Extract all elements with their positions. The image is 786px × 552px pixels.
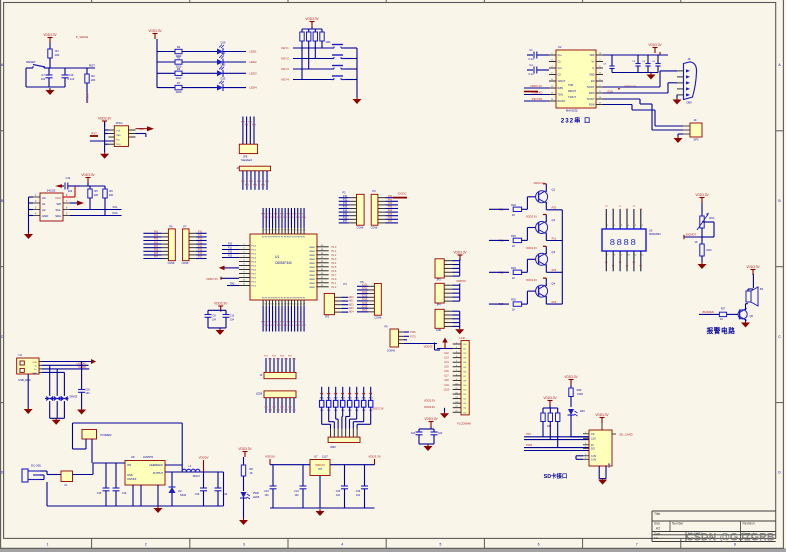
svg-text:/DCMOT: /DCMOT	[686, 233, 697, 237]
svg-text:VDD3.3V: VDD3.3V	[526, 214, 537, 218]
svg-text:C26: C26	[356, 490, 361, 493]
svg-text:P4: P4	[343, 282, 347, 286]
svg-text:5: 5	[439, 542, 441, 546]
svg-text:P0.0: P0.0	[252, 246, 257, 248]
svg-text:/CS7: /CS7	[362, 310, 368, 312]
svg-text:P13: P13	[198, 242, 203, 244]
svg-text:VDD3.3V: VDD3.3V	[695, 193, 709, 197]
svg-text:JP4: JP4	[436, 304, 441, 307]
svg-text:P31TXD: P31TXD	[532, 97, 543, 101]
svg-text:P0.1: P0.1	[252, 282, 257, 284]
svg-text:TDO: TDO	[116, 144, 121, 146]
svg-text:R5: R5	[94, 189, 98, 193]
svg-text:Q4: Q4	[552, 282, 556, 286]
svg-text:P0.2: P0.2	[252, 254, 257, 256]
svg-text:File: File	[654, 536, 659, 540]
svg-text:C4: C4	[529, 63, 533, 67]
svg-text:VDD5V: VDD5V	[456, 279, 466, 283]
svg-text:GND: GND	[609, 462, 611, 467]
svg-text:SM410564: SM410564	[649, 233, 661, 236]
svg-text:R2OUT: R2OUT	[568, 90, 577, 93]
svg-text:C1: C1	[529, 48, 533, 52]
svg-text:P14: P14	[198, 246, 203, 248]
svg-text:104: 104	[336, 494, 341, 497]
svg-text:RST: RST	[89, 64, 95, 68]
svg-text:DM9: DM9	[330, 446, 336, 449]
svg-text:C24: C24	[294, 490, 299, 493]
svg-text:VREF: VREF	[309, 251, 315, 253]
svg-text:VDD3.3V: VDD3.3V	[543, 396, 557, 400]
svg-text:R2IN: R2IN	[558, 87, 564, 90]
svg-text:AD4: AD4	[349, 311, 354, 314]
svg-text:LM2576: LM2576	[143, 455, 154, 459]
svg-text:R1IN: R1IN	[589, 104, 595, 107]
svg-text:104: 104	[230, 319, 235, 322]
svg-text:R30: R30	[577, 388, 582, 392]
svg-text:GND: GND	[127, 474, 133, 477]
svg-text:CON8: CON8	[168, 262, 175, 265]
svg-text:P1.1: P1.1	[332, 251, 337, 253]
svg-text:SS34: SS34	[180, 494, 187, 497]
svg-text:D40: D40	[580, 409, 585, 413]
svg-text:TCK: TCK	[116, 131, 121, 133]
svg-text:1K: 1K	[249, 471, 252, 475]
svg-text:CS: CS	[591, 433, 595, 436]
svg-text:LED8: LED8	[256, 393, 263, 396]
svg-text:LED5: LED5	[253, 496, 260, 499]
svg-text:CON8: CON8	[375, 317, 382, 320]
svg-text:C10: C10	[230, 315, 235, 318]
svg-text:DO: DO	[591, 447, 595, 450]
svg-text:1K: 1K	[512, 213, 515, 217]
svg-text:VDD3.3V: VDD3.3V	[206, 277, 218, 281]
svg-text:C23: C23	[264, 490, 269, 493]
svg-text:P17S: P17S	[410, 336, 416, 338]
svg-text:VREF: VREF	[309, 271, 315, 273]
svg-text:1K: 1K	[512, 308, 515, 312]
svg-text:P32: P32	[343, 203, 348, 205]
svg-text:C1-: C1-	[558, 61, 562, 64]
svg-text:VDD3.3V: VDD3.3V	[533, 181, 544, 185]
svg-text:C8051F340: C8051F340	[275, 261, 292, 265]
svg-text:VDD5V: VDD5V	[265, 455, 275, 459]
svg-text:1K: 1K	[512, 244, 515, 248]
svg-text:T2IN: T2IN	[568, 84, 573, 87]
svg-text:SCL: SCL	[56, 208, 62, 212]
svg-text:USBDP: USBDP	[78, 366, 87, 369]
svg-text:P33: P33	[343, 207, 348, 209]
svg-text:P42: P42	[388, 203, 393, 205]
svg-text:P0.5: P0.5	[252, 266, 257, 268]
svg-text:P2A: P2A	[112, 211, 117, 215]
svg-text:P0.2: P0.2	[252, 286, 257, 288]
svg-text:VDD5V: VDD5V	[198, 456, 208, 460]
svg-text:P12: P12	[228, 252, 233, 254]
svg-text:SDA: SDA	[55, 214, 61, 218]
svg-text:LD4: LD4	[444, 362, 449, 364]
svg-text:P0.3: P0.3	[252, 258, 257, 260]
svg-text:VDD3.3V: VDD3.3V	[526, 278, 537, 282]
svg-text:JP3: JP3	[436, 279, 441, 282]
svg-text:T1OUT: T1OUT	[568, 96, 576, 99]
svg-text:/CS6: /CS6	[362, 306, 368, 308]
svg-text:AD0: AD0	[349, 296, 354, 299]
svg-text:P17: P17	[198, 257, 203, 259]
svg-text:P1.2: P1.2	[332, 255, 337, 257]
svg-text:T2OUT: T2OUT	[558, 80, 566, 83]
svg-text:P0.4: P0.4	[252, 262, 257, 264]
svg-text:VREF: VREF	[309, 263, 315, 265]
svg-text:VDD3.3V: VDD3.3V	[305, 17, 319, 21]
svg-text:SD卡接口: SD卡接口	[544, 472, 568, 480]
svg-text:T2OUT: T2OUT	[587, 86, 595, 89]
svg-text:INT: INT	[318, 468, 322, 471]
svg-text:VDD3.3V: VDD3.3V	[368, 455, 381, 459]
svg-text:104: 104	[295, 494, 300, 497]
svg-text:LED4: LED4	[249, 86, 257, 90]
svg-text:R23: R23	[511, 234, 516, 238]
svg-text:D10: D10	[221, 41, 226, 45]
svg-text:LD3: LD3	[444, 357, 449, 359]
svg-text:VREF: VREF	[309, 255, 315, 257]
svg-text:LD7: LD7	[444, 376, 449, 378]
svg-text:P30: P30	[343, 196, 348, 198]
svg-text:LD5: LD5	[444, 367, 449, 369]
svg-text:P3: P3	[372, 189, 376, 193]
svg-text:AD3: AD3	[349, 307, 354, 310]
svg-text:CON8: CON8	[357, 227, 364, 230]
svg-text:C21: C21	[411, 432, 416, 435]
svg-text:D-: D-	[35, 366, 38, 368]
svg-text:VDD3.3V: VDD3.3V	[424, 399, 435, 403]
svg-text:WP: WP	[56, 202, 61, 206]
svg-text:CON8: CON8	[371, 227, 378, 230]
svg-text:7: 7	[636, 542, 638, 546]
svg-text:1: 1	[47, 542, 49, 546]
svg-text:P0.0: P0.0	[252, 278, 257, 280]
svg-text:U5: U5	[649, 229, 653, 233]
svg-text:P16S: P16S	[526, 443, 533, 447]
svg-text:R25: R25	[511, 298, 516, 302]
svg-text:P07: P07	[154, 257, 159, 259]
svg-text:CSDN @GJZGRB: CSDN @GJZGRB	[686, 532, 775, 544]
svg-text:VDD3.3V: VDD3.3V	[424, 405, 435, 409]
svg-text:AD2: AD2	[349, 303, 354, 306]
svg-text:TMS: TMS	[230, 284, 235, 286]
svg-text:VDD3.3V: VDD3.3V	[98, 117, 112, 121]
svg-text:C7: C7	[41, 73, 45, 77]
svg-text:C10: C10	[69, 73, 74, 77]
svg-text:6: 6	[538, 542, 540, 546]
svg-text:P12: P12	[198, 239, 203, 241]
svg-text:FLCD9648: FLCD9648	[457, 421, 471, 425]
svg-text:P22: P22	[552, 268, 557, 272]
svg-text:P1.5: P1.5	[332, 267, 337, 269]
svg-text:Size: Size	[654, 522, 660, 526]
svg-text:P0.7: P0.7	[252, 274, 257, 276]
svg-text:R6: R6	[109, 189, 113, 193]
svg-text:10K: 10K	[55, 53, 60, 57]
svg-text:R1OUT: R1OUT	[558, 100, 567, 103]
svg-text:RV1: RV1	[709, 216, 715, 220]
svg-text:P2: P2	[342, 191, 346, 195]
svg-text:B1: B1	[760, 287, 764, 291]
svg-text:Title: Title	[654, 512, 660, 516]
svg-text:U7: U7	[314, 455, 318, 459]
svg-text:VREF: VREF	[309, 287, 315, 289]
svg-text:EN: EN	[591, 80, 595, 83]
svg-text:KEY2: KEY2	[281, 57, 289, 61]
svg-text:OUTPUT: OUTPUT	[153, 472, 164, 475]
svg-text:P36: P36	[343, 218, 348, 220]
svg-text:报警电路: 报警电路	[707, 326, 736, 335]
svg-text:JP2: JP2	[325, 316, 330, 319]
svg-text:P1.0: P1.0	[332, 247, 337, 249]
svg-text:VREF: VREF	[309, 247, 315, 249]
svg-text:T1IN: T1IN	[558, 94, 563, 97]
svg-text:CON4S: CON4S	[387, 350, 396, 353]
svg-text:SIP2: SIP2	[693, 139, 699, 142]
svg-text:U4: U4	[19, 353, 23, 357]
svg-text:GND: GND	[436, 329, 442, 332]
svg-text:P13: P13	[228, 256, 233, 258]
svg-text:P1.7: P1.7	[332, 275, 337, 277]
svg-text:USBDM: USBDM	[77, 362, 86, 365]
svg-text:24C02: 24C02	[47, 189, 56, 193]
svg-text:R8: R8	[249, 467, 253, 471]
svg-text:GND: GND	[32, 373, 37, 375]
svg-text:VDD: VDD	[32, 362, 37, 364]
svg-text:Revision: Revision	[743, 522, 755, 526]
svg-text:P46: P46	[388, 218, 393, 220]
svg-text:A2: A2	[656, 527, 660, 531]
svg-text:/BUZZER: /BUZZER	[702, 310, 714, 314]
svg-text:3.3V: 3.3V	[591, 458, 596, 461]
svg-text:VDD3.3V: VDD3.3V	[453, 251, 467, 255]
svg-text:P16: P16	[198, 253, 203, 255]
svg-text:VDD3.3V: VDD3.3V	[148, 29, 162, 33]
svg-text:J4: J4	[694, 118, 697, 122]
svg-text:P21: P21	[552, 236, 557, 240]
svg-text:VIN: VIN	[127, 464, 131, 467]
svg-text:U2: U2	[558, 45, 562, 49]
svg-text:P1.3: P1.3	[332, 259, 337, 261]
svg-text:LD9: LD9	[444, 385, 449, 387]
svg-text:A0: A0	[42, 196, 46, 200]
svg-text:C1+: C1+	[558, 54, 563, 57]
svg-text:C2+: C2+	[558, 67, 563, 70]
svg-text:VDD3.3V: VDD3.3V	[214, 302, 228, 306]
svg-text:VDD: VDD	[589, 54, 594, 57]
svg-text:104: 104	[68, 189, 73, 193]
svg-text:P1.1: P1.1	[332, 283, 337, 285]
svg-text:D11: D11	[221, 51, 226, 55]
svg-text:2: 2	[145, 542, 147, 546]
svg-text:/CS2: /CS2	[362, 292, 368, 294]
svg-text:R4: R4	[177, 45, 181, 49]
svg-text:C16: C16	[122, 492, 127, 495]
svg-text:VDD3.3V: VDD3.3V	[564, 375, 578, 379]
svg-text:P1.0: P1.0	[332, 279, 337, 281]
svg-text:FEEDBACK: FEEDBACK	[150, 464, 164, 467]
svg-text:P41: P41	[388, 200, 393, 202]
svg-text:CLK: CLK	[591, 437, 596, 440]
svg-text:KEY3: KEY3	[281, 67, 289, 71]
svg-text:P34: P34	[343, 210, 348, 212]
svg-text:Q2: Q2	[552, 218, 556, 222]
svg-text:D12: D12	[221, 62, 226, 66]
svg-text:/CS3: /CS3	[362, 295, 368, 297]
svg-text:P02: P02	[154, 239, 159, 241]
svg-text:8888: 8888	[610, 237, 638, 248]
svg-text:JTAG: JTAG	[115, 121, 123, 125]
svg-text:3300: 3300	[176, 76, 182, 80]
svg-text:P45: P45	[388, 214, 393, 216]
svg-text:P10: P10	[198, 232, 203, 234]
svg-text:DB9: DB9	[686, 101, 692, 105]
svg-text:ON/OFF: ON/OFF	[127, 478, 137, 481]
svg-text:P04: P04	[154, 246, 159, 248]
svg-text:P1.4: P1.4	[332, 263, 337, 265]
svg-text:J6: J6	[688, 57, 691, 61]
svg-text:U6: U6	[131, 455, 135, 459]
svg-text:VDD3.3V: VDD3.3V	[315, 464, 325, 467]
svg-text:P15: P15	[526, 432, 531, 436]
svg-text:RST: RST	[91, 132, 97, 136]
svg-text:P2L: P2L	[113, 205, 118, 209]
svg-text:C11: C11	[66, 176, 71, 180]
svg-text:C2-: C2-	[558, 74, 562, 77]
svg-text:1K: 1K	[720, 318, 723, 321]
svg-text:P10: P10	[228, 244, 233, 246]
svg-text:Q3: Q3	[552, 250, 556, 254]
svg-text:330uH: 330uH	[192, 475, 199, 478]
svg-text:VREF: VREF	[309, 283, 315, 285]
svg-text:C25: C25	[336, 490, 341, 493]
svg-text:10K: 10K	[547, 425, 552, 428]
svg-text:3: 3	[243, 542, 245, 546]
svg-text:Q1: Q1	[552, 187, 556, 191]
svg-text:10K: 10K	[91, 78, 96, 82]
svg-text:P15: P15	[198, 250, 203, 252]
svg-text:VDD3.3V: VDD3.3V	[526, 246, 537, 250]
svg-text:1K: 1K	[694, 240, 697, 244]
svg-text:LD6: LD6	[444, 371, 449, 373]
svg-text:P05: P05	[154, 250, 159, 252]
svg-text:DC-005: DC-005	[31, 464, 41, 468]
svg-text:P43: P43	[388, 207, 393, 209]
svg-text:LED2: LED2	[249, 60, 257, 64]
svg-text:P44: P44	[388, 210, 393, 212]
svg-text:P01: P01	[154, 235, 159, 237]
svg-text:P0.1: P0.1	[252, 250, 257, 252]
svg-text:VCC: VCC	[55, 196, 61, 200]
svg-text:P5: P5	[360, 280, 364, 284]
svg-text:LD2: LD2	[444, 353, 449, 355]
svg-text:10K: 10K	[109, 193, 114, 197]
svg-text:LED1: LED1	[249, 50, 257, 54]
svg-text:VREF: VREF	[309, 275, 315, 277]
svg-text:P7: P7	[183, 225, 187, 229]
svg-text:Standard: Standard	[241, 158, 252, 162]
svg-text:R2IN: R2IN	[589, 92, 595, 95]
svg-text:VREF: VREF	[309, 279, 315, 281]
svg-text:KEY4: KEY4	[281, 78, 289, 82]
svg-text:Date: Date	[654, 531, 661, 535]
svg-text:VDD3.3V: VDD3.3V	[595, 413, 609, 417]
svg-text:V-: V-	[592, 67, 594, 70]
svg-text:VDD3.3V: VDD3.3V	[81, 173, 95, 177]
svg-text:VREF: VREF	[309, 259, 315, 261]
svg-text:VDD3.3V: VDD3.3V	[43, 33, 57, 37]
svg-text:104: 104	[212, 319, 217, 322]
svg-text:VDD3.3V: VDD3.3V	[372, 407, 383, 411]
svg-text:/DCDC: /DCDC	[398, 192, 407, 196]
svg-text:100R: 100R	[577, 393, 583, 396]
svg-text:R5: R5	[177, 56, 181, 60]
svg-text:TP_RST: TP_RST	[86, 92, 90, 103]
svg-text:P1.2: P1.2	[332, 287, 337, 289]
svg-text:P_WAKE: P_WAKE	[76, 35, 88, 39]
svg-text:VDD3.3V: VDD3.3V	[238, 447, 252, 451]
svg-text:P16S: P16S	[410, 332, 416, 334]
svg-text:/CS0: /CS0	[362, 285, 368, 287]
svg-text:T1OUT: T1OUT	[587, 98, 595, 101]
svg-text:A2: A2	[42, 208, 46, 212]
svg-text:P31: P31	[343, 200, 348, 202]
svg-text:0.1u: 0.1u	[528, 72, 534, 76]
svg-text:VREF: VREF	[309, 267, 315, 269]
svg-text:CON8: CON8	[182, 262, 189, 265]
svg-text:TDI: TDI	[116, 140, 120, 142]
svg-text:P35: P35	[343, 214, 348, 216]
svg-text:/CS5: /CS5	[362, 303, 368, 305]
svg-text:R24: R24	[707, 248, 712, 252]
svg-text:R22: R22	[511, 203, 516, 207]
svg-text:USB_MINI: USB_MINI	[18, 378, 31, 382]
svg-text:TMS: TMS	[116, 135, 121, 137]
svg-text:0.1u: 0.1u	[528, 57, 534, 61]
svg-text:/CS1: /CS1	[362, 288, 368, 290]
svg-text:R27: R27	[721, 308, 726, 311]
svg-text:P03: P03	[154, 242, 159, 244]
svg-text:P40: P40	[388, 196, 393, 198]
svg-text:P00: P00	[154, 232, 159, 234]
svg-text:104: 104	[356, 494, 361, 497]
svg-text:/CS4: /CS4	[362, 299, 368, 301]
svg-text:P37: P37	[343, 221, 348, 223]
svg-text:P1.6: P1.6	[332, 271, 337, 273]
svg-text:LED3: LED3	[249, 71, 257, 75]
svg-text:VDD33: VDD33	[424, 345, 433, 349]
svg-text:1K: 1K	[512, 276, 515, 280]
svg-text:MAX3232: MAX3232	[566, 109, 578, 113]
svg-text:PWR: PWR	[253, 492, 259, 495]
svg-text:C19: C19	[195, 493, 200, 496]
svg-text:P0.6: P0.6	[252, 270, 257, 272]
svg-text:4: 4	[341, 542, 343, 546]
svg-text:P47: P47	[388, 221, 393, 223]
svg-text:3300: 3300	[176, 90, 182, 94]
svg-text:P6: P6	[169, 225, 173, 229]
svg-text:104: 104	[41, 77, 46, 81]
svg-text:SD_CARD: SD_CARD	[619, 433, 632, 437]
svg-text:104: 104	[86, 392, 91, 395]
svg-text:LD8: LD8	[444, 380, 449, 382]
svg-text:C22: C22	[438, 432, 443, 435]
svg-text:GND: GND	[589, 74, 595, 77]
svg-text:0.1uF: 0.1uF	[68, 77, 75, 81]
